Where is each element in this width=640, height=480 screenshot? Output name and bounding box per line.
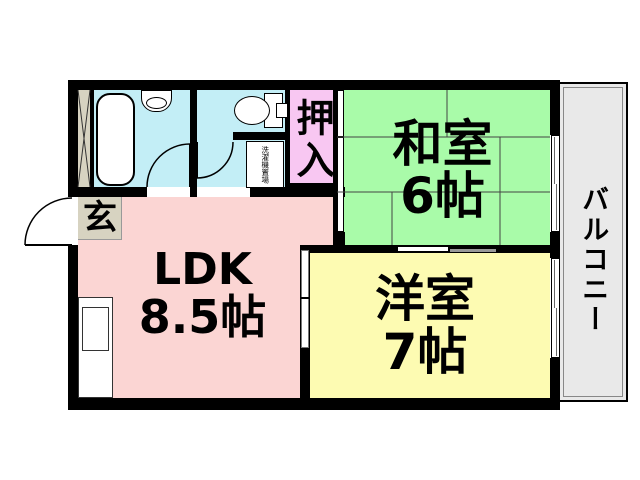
wall-toilet-hall [233,132,285,140]
sliding-door-washitsu-youshitsu-left [397,246,449,252]
toilet-tank-notch [276,103,288,118]
bathtub [96,93,135,186]
washbasin-bowl [146,97,167,109]
wall-bath-toilet-divider [190,90,197,187]
door-opening-hall-ldk [197,187,250,197]
sliding-door-ldk-youshitsu [301,250,309,348]
laundry-box: 洗濯機置場 [246,141,284,188]
wall-oshiire-bottom [285,183,337,197]
entrance-door-arc [25,198,72,245]
wall-right-1 [550,80,560,135]
laundry-label: 洗濯機置場 [261,146,269,184]
wall-bottom [68,398,560,410]
wall-right-3 [550,358,560,410]
door-opening-bathroom [147,187,190,197]
wall-top [68,80,560,90]
wall-ps-bath-divider [90,90,94,187]
room-genkan [78,197,122,240]
room-washitsu [337,90,550,245]
room-youshitsu [310,253,550,398]
wall-left-lower [68,245,78,410]
room-pipe-space [78,90,90,187]
sliding-door-washitsu-fusuma [337,90,344,232]
toilet-bowl [234,96,270,125]
kitchen-sink [82,307,109,351]
floorplan-canvas: 洗濯機置場 LDK 8.5帖 和室 6帖 洋室 7帖 押入 玄 バルコニー [0,0,640,480]
window-youshitsu-balcony [551,258,560,358]
wall-left-upper [68,80,78,197]
fusuma-tick [337,136,344,138]
door-opening-entrance [68,197,78,245]
sliding-door-ldk-youshitsu-tick [301,297,309,299]
sliding-door-washitsu-youshitsu-right [449,248,497,253]
window-washitsu-balcony [551,135,560,232]
balcony-inner-rail-line [563,87,623,397]
room-oshiire [290,90,333,187]
